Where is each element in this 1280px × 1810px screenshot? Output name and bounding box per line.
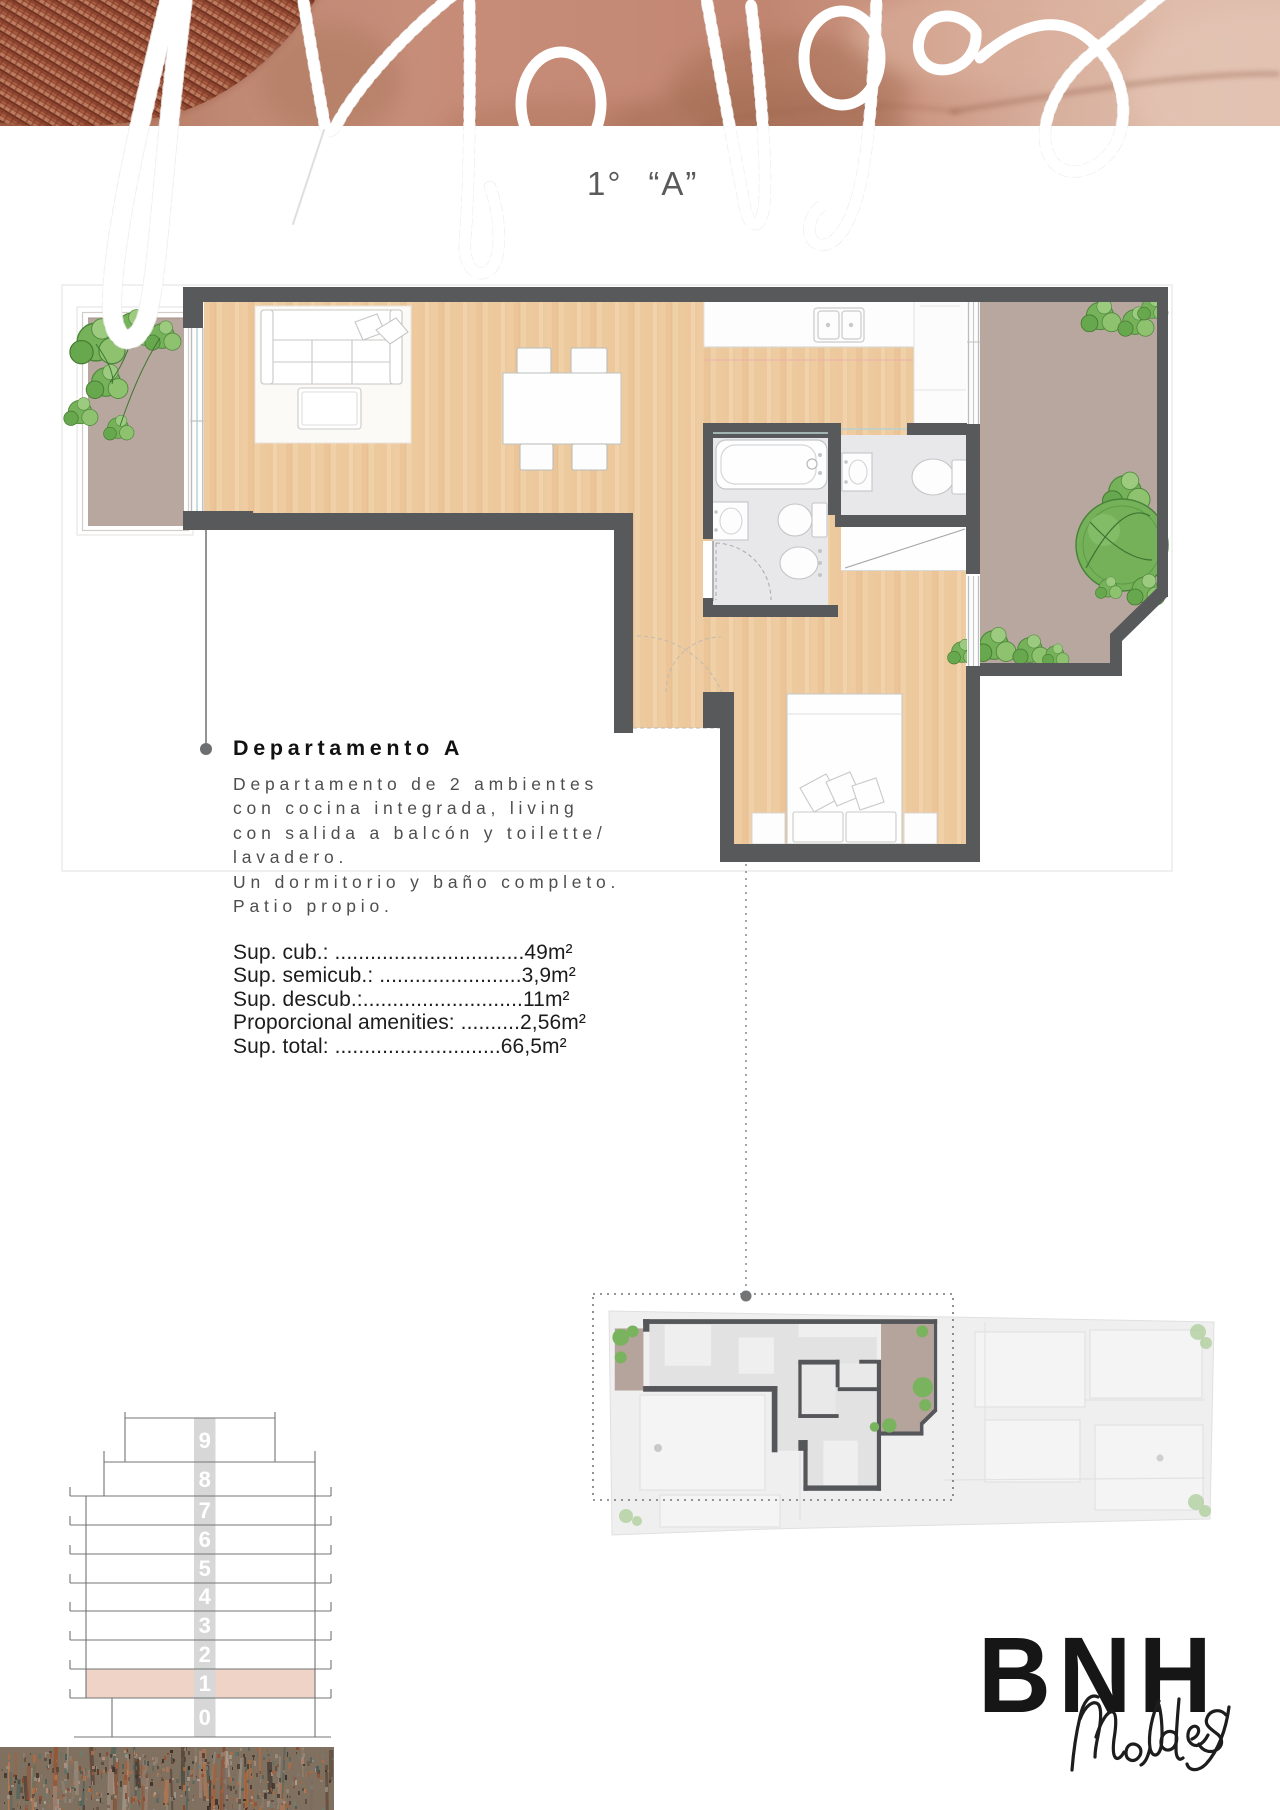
svg-text:0: 0 — [199, 1705, 211, 1730]
svg-text:9: 9 — [199, 1428, 211, 1453]
svg-text:2: 2 — [199, 1642, 211, 1667]
svg-text:6: 6 — [199, 1527, 211, 1552]
svg-text:1: 1 — [199, 1671, 211, 1696]
svg-text:8: 8 — [199, 1467, 211, 1492]
svg-text:3: 3 — [199, 1613, 211, 1638]
svg-text:4: 4 — [199, 1584, 212, 1609]
svg-text:7: 7 — [199, 1498, 211, 1523]
svg-text:5: 5 — [199, 1556, 211, 1581]
